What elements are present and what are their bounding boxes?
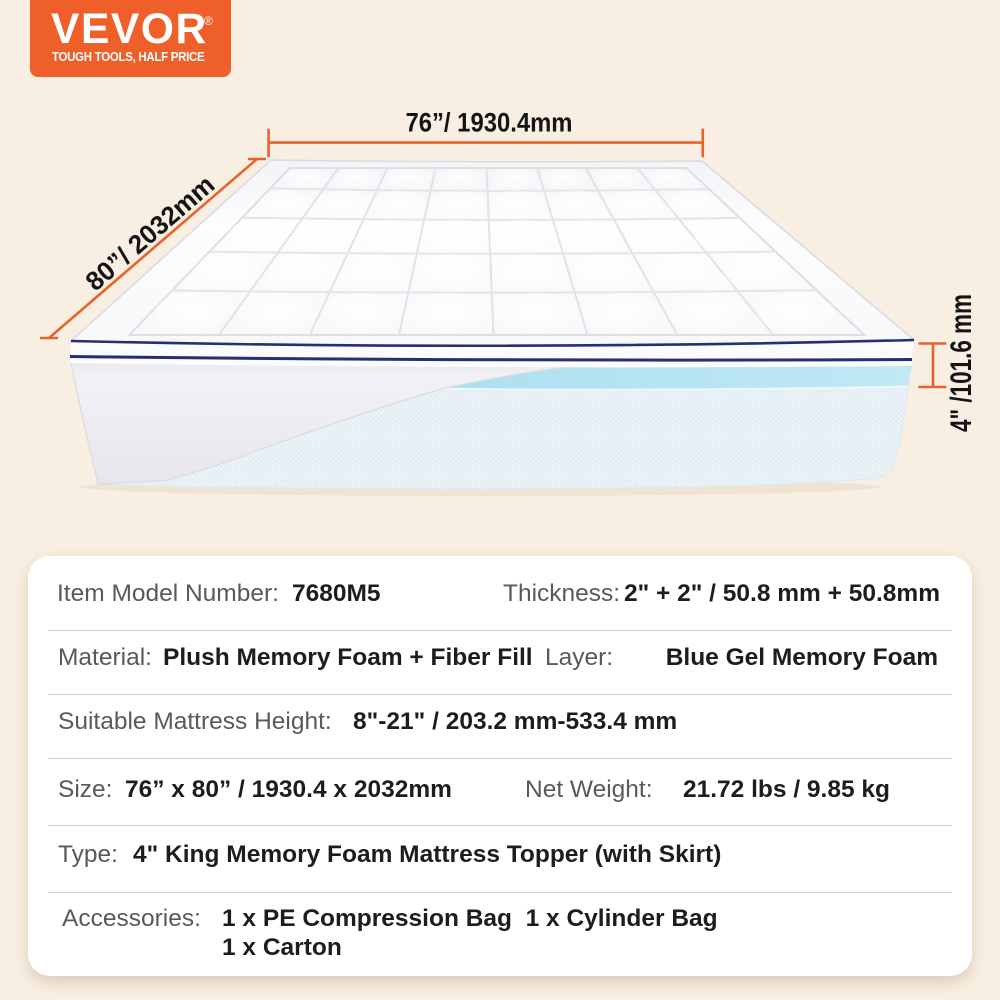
svg-text:4" /101.6 mm: 4" /101.6 mm	[945, 294, 978, 432]
svg-text:76”/ 1930.4mm: 76”/ 1930.4mm	[406, 108, 573, 138]
